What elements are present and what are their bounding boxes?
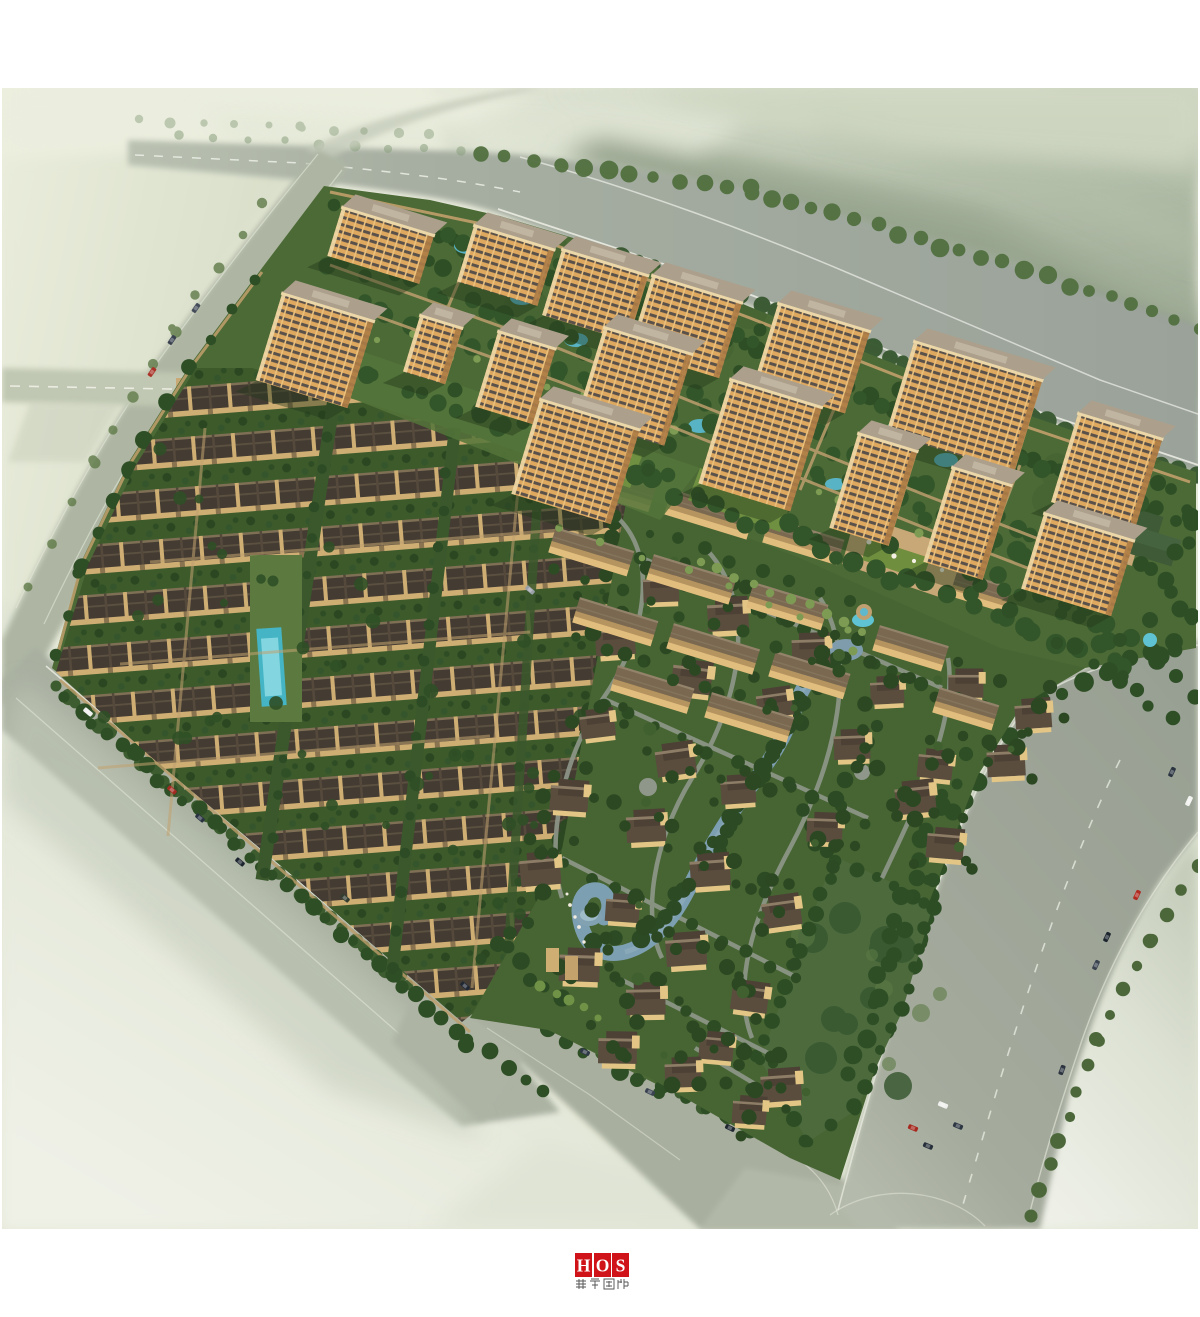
svg-text:O: O [596, 1256, 610, 1276]
svg-text:S: S [616, 1256, 626, 1276]
svg-text:H: H [577, 1256, 591, 1276]
